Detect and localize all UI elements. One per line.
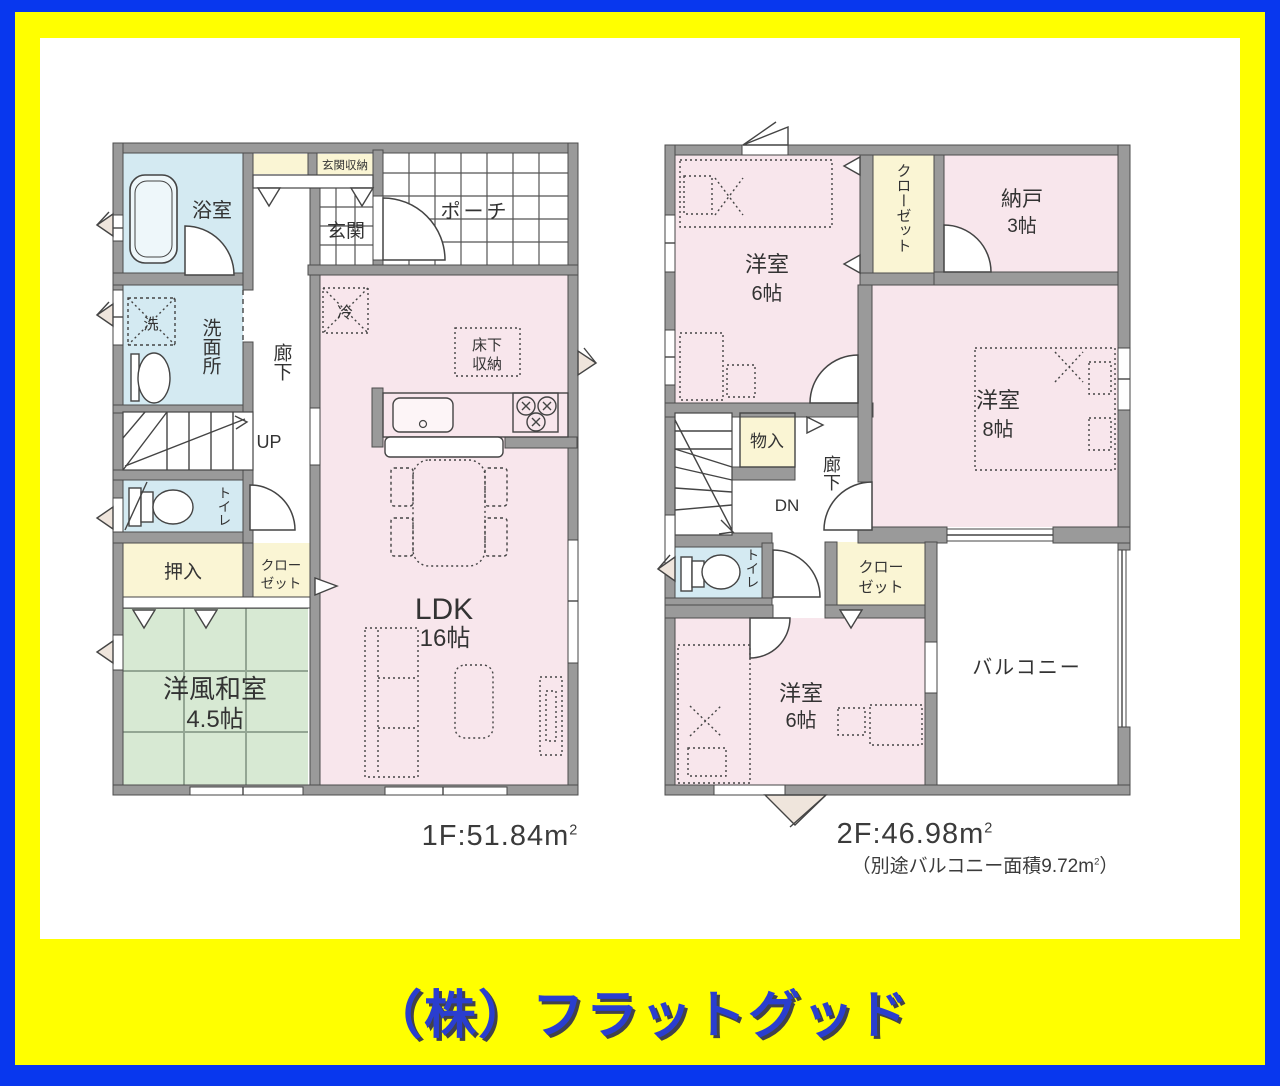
label-bath: 浴室 <box>192 199 232 222</box>
label-monoire: 物入 <box>750 432 784 451</box>
label-entrance: 玄関 <box>327 220 365 242</box>
area-label-1f: 1F:51.84m2 <box>380 820 620 853</box>
label-porch: ポーチ <box>441 200 510 223</box>
balcony-area-note: （別途バルコニー面積9.72m2） <box>795 851 1175 878</box>
sink-icon <box>393 398 453 432</box>
down-arrow-icon <box>258 188 280 206</box>
floorplan-2f: 洋室 6帖 クローゼット 納戸 3帖 洋室 8帖 物入 廊下 DN トイレ クロ… <box>655 120 1165 832</box>
down-arrow-icon <box>351 188 373 206</box>
label-toilet-1f: トイレ <box>216 486 231 527</box>
right-arrow-icon <box>578 351 596 375</box>
label-closet-top: クローゼット <box>895 163 912 253</box>
floorplan-1f: 浴室 玄関収納 玄関 ポーチ 洗 洗面所 廊下 UP トイレ 押入 クロー ゼッ… <box>95 138 605 823</box>
label-bedroom8-1: 洋室 <box>976 388 1020 413</box>
washroom-sink <box>131 353 170 403</box>
room-hall-storage <box>253 154 308 174</box>
label-underfloor-1: 床下 <box>472 337 502 354</box>
label-ldk-size: 16帖 <box>420 625 471 652</box>
toilet-door-icon <box>250 485 295 530</box>
label-bedroom6b-2: 6帖 <box>785 709 816 732</box>
stairs-down <box>675 413 733 535</box>
room-ldk <box>320 275 568 785</box>
label-washer: 洗 <box>143 316 158 333</box>
area-label-2f: 2F:46.98m2 <box>815 818 1015 851</box>
label-bedroom6a-2: 6帖 <box>751 282 782 305</box>
label-washroom: 洗面所 <box>200 318 222 375</box>
label-oshiire: 押入 <box>164 561 202 583</box>
label-up: UP <box>256 432 281 452</box>
right-arrow-icon <box>807 417 823 433</box>
tatami-step <box>123 597 310 608</box>
toilet-door-2f-icon <box>773 550 820 597</box>
label-tatami-1: 洋風和室 <box>163 674 267 704</box>
roof-vent-top-icon <box>743 122 788 145</box>
area-sup-2f: 2 <box>984 820 993 836</box>
label-closet-bottom-2: ゼット <box>858 579 903 596</box>
label-fridge: 冷 <box>337 304 353 322</box>
area-sup-1f: 2 <box>569 822 578 838</box>
label-closet-bottom-1: クロー <box>858 559 903 576</box>
company-name-text: （株）フラットグッド <box>370 973 910 1048</box>
label-dn: DN <box>775 496 800 515</box>
label-bedroom8-2: 8帖 <box>982 418 1013 441</box>
label-toilet-2f: トイレ <box>744 548 759 589</box>
left-arrow-icon <box>97 507 113 529</box>
left-arrow-icon <box>97 641 113 663</box>
label-ldk: LDK <box>415 593 473 626</box>
flyer-page: { "company": "（株）フラットグッド", "colors": { "… <box>0 0 1280 1086</box>
stairs-up <box>123 412 253 470</box>
label-underfloor-2: 収納 <box>472 356 502 373</box>
label-storage-1: 納戸 <box>1001 188 1043 211</box>
toilet-fixture-2f <box>681 555 740 591</box>
front-door-icon <box>383 198 445 260</box>
label-tatami-2: 4.5帖 <box>186 706 243 733</box>
label-hall-1f: 廊下 <box>271 343 293 381</box>
label-bedroom6a-1: 洋室 <box>745 252 789 277</box>
company-name: （株）フラットグッド <box>15 965 1265 1055</box>
label-closet-1f-1: クロー <box>261 558 302 573</box>
label-balcony: バルコニー <box>972 657 1082 679</box>
label-bedroom6b-1: 洋室 <box>779 681 823 706</box>
label-closet-1f-2: ゼット <box>261 576 302 591</box>
label-hall-2f: 廊下 <box>821 455 841 491</box>
bathtub <box>130 175 177 263</box>
label-entrance-storage: 玄関収納 <box>322 158 368 172</box>
kitchen-island <box>385 437 503 457</box>
label-storage-2: 3帖 <box>1007 215 1037 237</box>
